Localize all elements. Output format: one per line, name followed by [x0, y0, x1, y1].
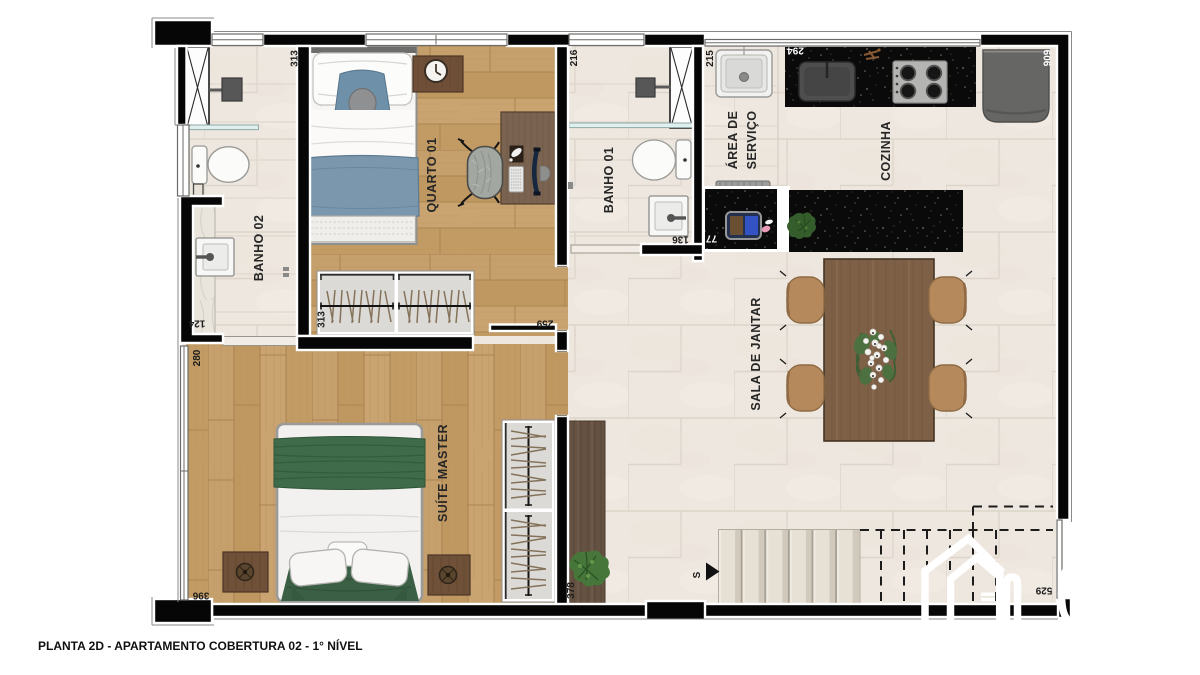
svg-text:396: 396	[192, 590, 209, 601]
svg-text:SUÍTE MASTER: SUÍTE MASTER	[435, 424, 450, 522]
svg-text:280: 280	[192, 349, 203, 366]
svg-text:SERVIÇO: SERVIÇO	[745, 111, 759, 170]
svg-text:313: 313	[317, 311, 328, 328]
svg-text:SALA DE JANTAR: SALA DE JANTAR	[749, 297, 763, 410]
svg-text:259: 259	[536, 318, 553, 329]
svg-text:BANHO 01: BANHO 01	[602, 147, 616, 213]
svg-text:606: 606	[1041, 50, 1052, 67]
svg-text:136: 136	[672, 234, 689, 245]
svg-text:COZINHA: COZINHA	[879, 121, 893, 181]
svg-text:124: 124	[188, 318, 205, 329]
svg-text:BANHO 02: BANHO 02	[252, 215, 266, 281]
svg-text:S: S	[692, 571, 703, 578]
svg-text:313: 313	[290, 50, 301, 67]
svg-text:215: 215	[705, 50, 716, 67]
svg-text:QUARTO 01: QUARTO 01	[425, 138, 439, 213]
svg-text:216: 216	[569, 49, 580, 66]
svg-text:378: 378	[566, 582, 577, 599]
svg-text:PLANTA 2D - APARTAMENTO COBERT: PLANTA 2D - APARTAMENTO COBERTURA 02 - 1…	[38, 638, 363, 653]
svg-text:294: 294	[787, 45, 804, 56]
svg-text:529: 529	[1035, 585, 1052, 596]
svg-text:ÁREA DE: ÁREA DE	[725, 111, 740, 170]
svg-text:77: 77	[706, 233, 718, 244]
